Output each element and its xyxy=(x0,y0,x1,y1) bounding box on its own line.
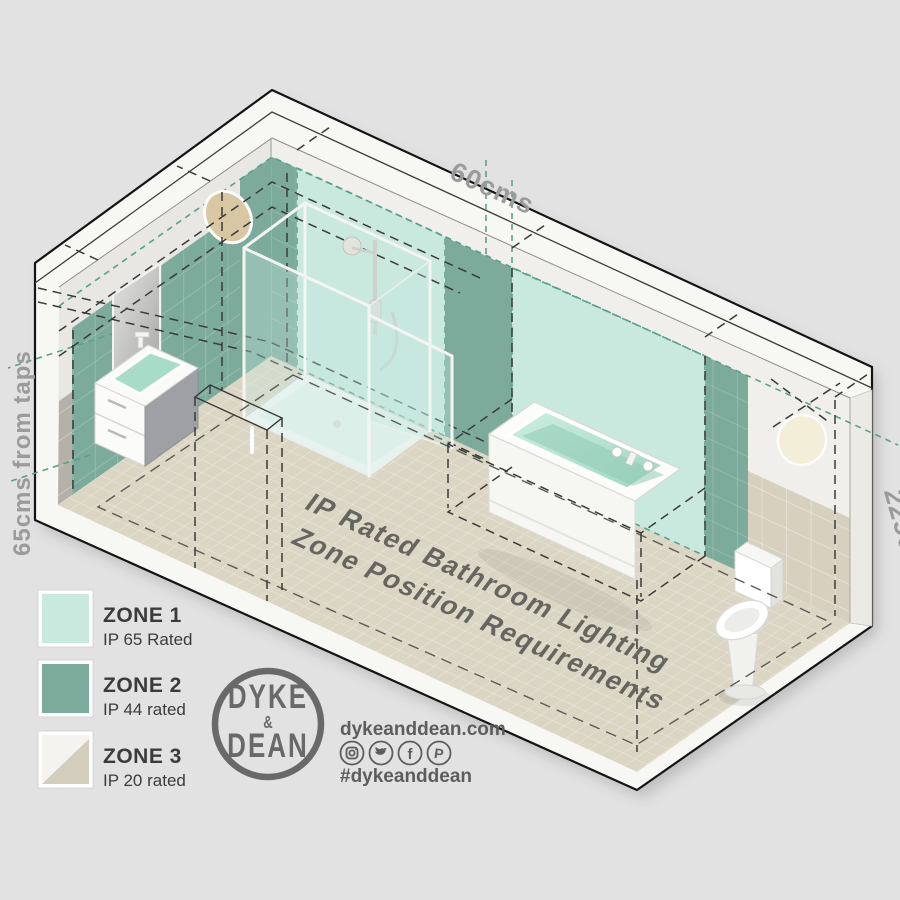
infographic-canvas: IP Rated Bathroom Lighting Zone Position… xyxy=(0,0,900,900)
logo-text-bottom: DEAN xyxy=(227,727,309,765)
zone3-rating: IP 20 rated xyxy=(103,771,186,790)
zone1-label: ZONE 1 xyxy=(103,604,182,627)
bathroom-zone-diagram: IP Rated Bathroom Lighting Zone Position… xyxy=(0,0,900,900)
dimension-left-height: 65cms from taps xyxy=(9,350,36,556)
zone1-rating: IP 65 Rated xyxy=(103,630,192,649)
legend: ZONE 1 IP 65 Rated ZONE 2 IP 44 rated ZO… xyxy=(38,590,192,790)
bath-tap xyxy=(643,461,653,471)
bath-tap xyxy=(612,447,622,457)
hashtag: #dykeanddean xyxy=(340,766,472,787)
zone2-swatch xyxy=(42,664,89,713)
zone1-swatch xyxy=(42,594,89,643)
zone2-label: ZONE 2 xyxy=(103,674,182,697)
zone2-rating: IP 44 rated xyxy=(103,700,186,719)
website-url[interactable]: dykeanddean.com xyxy=(340,719,506,740)
logo-text-top: DYKE xyxy=(228,678,308,716)
zone3-label: ZONE 3 xyxy=(103,745,182,768)
